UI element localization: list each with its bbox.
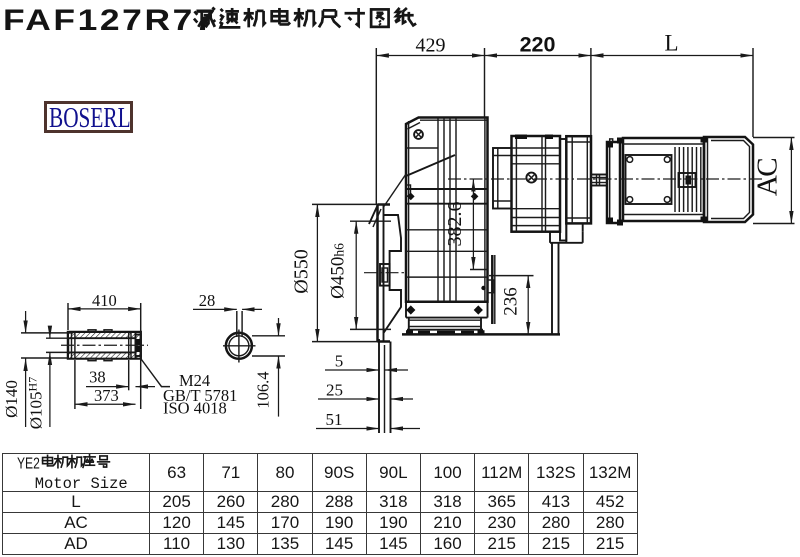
svg-text:28: 28: [199, 291, 216, 310]
svg-text:ISO 4018: ISO 4018: [163, 399, 227, 418]
svg-text:220: 220: [520, 33, 556, 57]
svg-text:410: 410: [92, 291, 117, 310]
svg-text:236: 236: [501, 287, 522, 316]
svg-text:Ø105H7: Ø105H7: [26, 377, 46, 429]
svg-text:Ø550: Ø550: [291, 249, 313, 293]
svg-text:Motor Size: Motor Size: [35, 475, 128, 489]
svg-text:382.6: 382.6: [444, 202, 466, 247]
svg-text:AC: AC: [752, 159, 784, 196]
svg-text:Ø140: Ø140: [2, 380, 21, 418]
svg-text:373: 373: [94, 386, 119, 405]
svg-text:51: 51: [326, 410, 343, 429]
svg-text:5: 5: [335, 352, 344, 371]
svg-text:Ø450h6: Ø450h6: [328, 243, 349, 299]
svg-text:429: 429: [416, 35, 446, 57]
svg-text:YE2: YE2: [17, 454, 40, 472]
svg-text:25: 25: [326, 381, 343, 400]
svg-text:106.4: 106.4: [254, 371, 273, 408]
svg-text:38: 38: [89, 368, 106, 387]
svg-text:L: L: [664, 31, 678, 56]
